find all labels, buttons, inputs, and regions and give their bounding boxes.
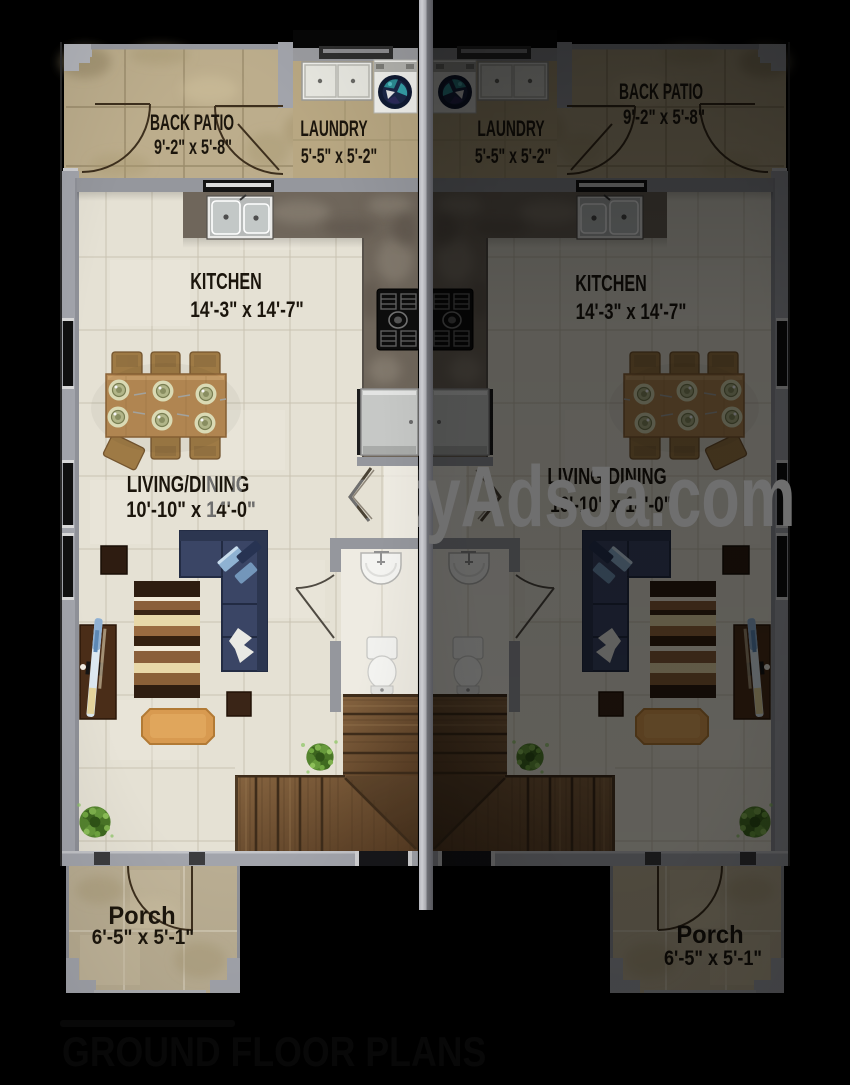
svg-text:LAUNDRY: LAUNDRY — [477, 116, 544, 141]
svg-text:14'-3" x 14'-7": 14'-3" x 14'-7" — [576, 300, 687, 325]
svg-text:6'-5" x 5'-1": 6'-5" x 5'-1" — [92, 926, 195, 949]
svg-text:KITCHEN: KITCHEN — [190, 269, 262, 294]
svg-text:5'-5" x 5'-2": 5'-5" x 5'-2" — [475, 144, 551, 167]
svg-text:GROUND FLOOR PLANS: GROUND FLOOR PLANS — [62, 1029, 486, 1075]
svg-text:KITCHEN: KITCHEN — [575, 271, 647, 296]
svg-text:9'-2" x 5'-8": 9'-2" x 5'-8" — [154, 135, 232, 158]
svg-text:9'-2" x 5'-8": 9'-2" x 5'-8" — [623, 104, 705, 128]
svg-text:BACK PATIO: BACK PATIO — [619, 79, 703, 104]
svg-text:6'-5" x 5'-1": 6'-5" x 5'-1" — [664, 947, 762, 971]
svg-text:14'-3" x 14'-7": 14'-3" x 14'-7" — [190, 298, 304, 322]
svg-text:Porch: Porch — [676, 921, 743, 949]
svg-text:PropertyAdsJa.com: PropertyAdsJa.com — [202, 448, 795, 544]
svg-text:LAUNDRY: LAUNDRY — [300, 116, 367, 141]
svg-text:5'-5" x 5'-2": 5'-5" x 5'-2" — [301, 144, 377, 167]
svg-text:BACK PATIO: BACK PATIO — [150, 110, 234, 135]
